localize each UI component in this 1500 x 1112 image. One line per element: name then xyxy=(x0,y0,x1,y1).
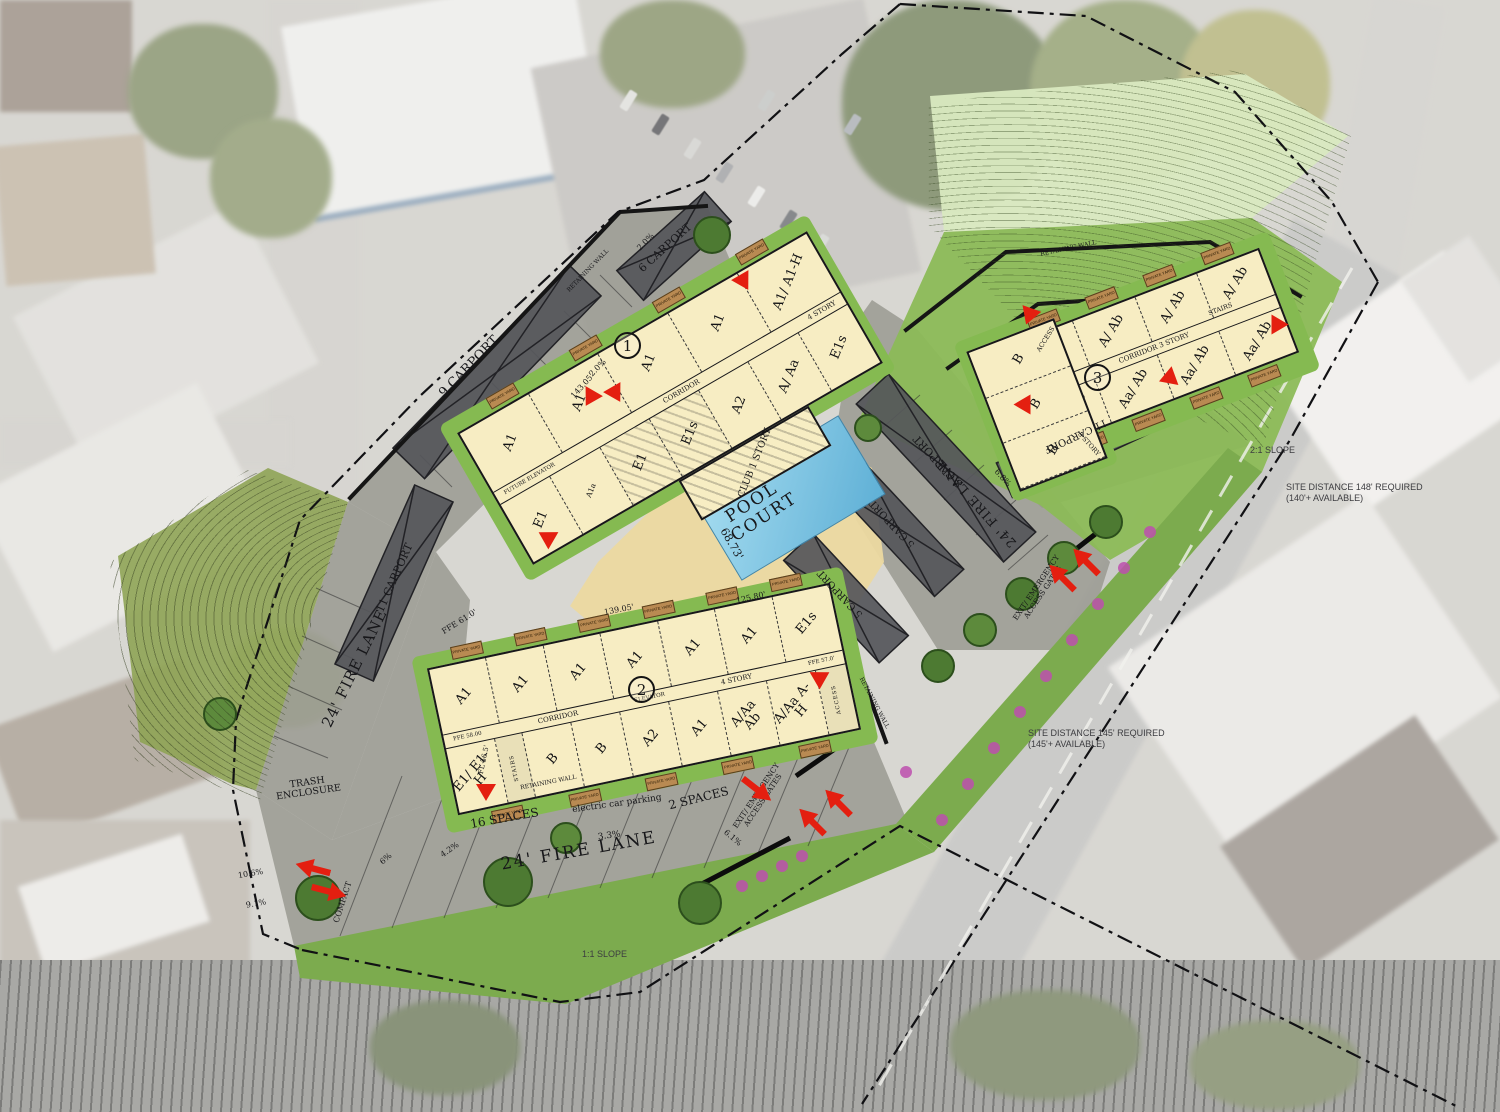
label-site-distance-right: SITE DISTANCE 148' REQUIRED (140'+ AVAIL… xyxy=(1286,482,1466,505)
building-3-number: 3 xyxy=(1084,364,1111,391)
site-distance-right-line2: (140'+ AVAILABLE) xyxy=(1286,493,1363,503)
site-distance-right-line1: SITE DISTANCE 148' REQUIRED xyxy=(1286,482,1423,492)
entry-marker xyxy=(1272,315,1289,335)
label-site-distance-lower: SITE DISTANCE 145' REQUIRED (145'+ AVAIL… xyxy=(1028,728,1208,751)
site-distance-lower-line2: (145'+ AVAILABLE) xyxy=(1028,739,1105,749)
unit-cell: E1s xyxy=(772,585,842,661)
building-2-number: 2 xyxy=(628,676,655,703)
entry-marker xyxy=(476,784,496,801)
site-distance-lower-line1: SITE DISTANCE 145' REQUIRED xyxy=(1028,728,1165,738)
building-1-number: 1 xyxy=(614,332,641,359)
entry-marker xyxy=(1014,395,1031,415)
building-2-ffe-left: FFE 58.00 xyxy=(453,731,483,743)
label-slope-2-1: 2:1 SLOPE xyxy=(1250,446,1295,456)
label-slope-1-1: 1:1 SLOPE xyxy=(582,950,627,960)
site-plan-canvas: PRIVATE YARDPRIVATE YARDPRIVATE YARDPRIV… xyxy=(0,0,1500,1112)
